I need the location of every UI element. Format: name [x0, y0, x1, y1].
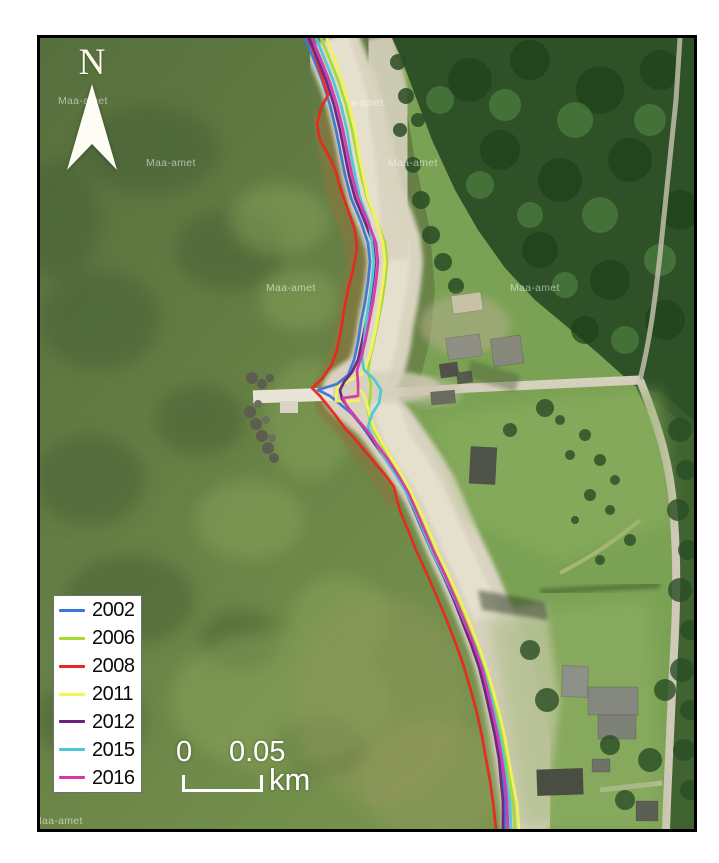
scale-bar-bracket — [182, 775, 263, 792]
legend-item: 2011 — [54, 681, 141, 708]
legend-swatch — [59, 720, 85, 723]
north-label: N — [64, 44, 120, 81]
legend-label: 2011 — [92, 684, 133, 704]
legend-label: 2015 — [92, 740, 135, 760]
legend-swatch — [59, 637, 85, 640]
legend: 2002 2006 2008 2011 2012 2015 2016 — [53, 595, 142, 793]
watermark-text: Maa-amet — [388, 157, 438, 169]
legend-item: 2015 — [54, 736, 141, 763]
legend-label: 2006 — [92, 628, 135, 648]
legend-swatch — [59, 609, 85, 612]
legend-item: 2012 — [54, 708, 141, 735]
watermark-text: Maa-amet — [40, 815, 83, 827]
watermark-text: Maa-amet — [266, 282, 316, 294]
scale-label-start: 0 — [176, 736, 192, 769]
legend-swatch — [59, 748, 85, 751]
legend-item: 2008 — [54, 653, 141, 680]
legend-label: 2016 — [92, 768, 135, 788]
legend-label: 2008 — [92, 656, 135, 676]
scale-unit: km — [269, 762, 310, 798]
legend-label: 2002 — [92, 600, 135, 620]
legend-swatch — [59, 776, 85, 779]
watermark-text: Maa-amet — [146, 157, 196, 169]
legend-item: 2006 — [54, 625, 141, 652]
north-arrow: N — [64, 44, 120, 176]
legend-swatch — [59, 665, 85, 668]
legend-item: 2002 — [54, 597, 141, 624]
watermark-text: Maa-amet — [510, 282, 560, 294]
north-arrow-icon — [67, 84, 117, 174]
legend-swatch — [59, 693, 85, 696]
legend-item: 2016 — [54, 764, 141, 791]
scale-bar: 0 0.05 km — [170, 736, 370, 806]
legend-label: 2012 — [92, 712, 135, 732]
